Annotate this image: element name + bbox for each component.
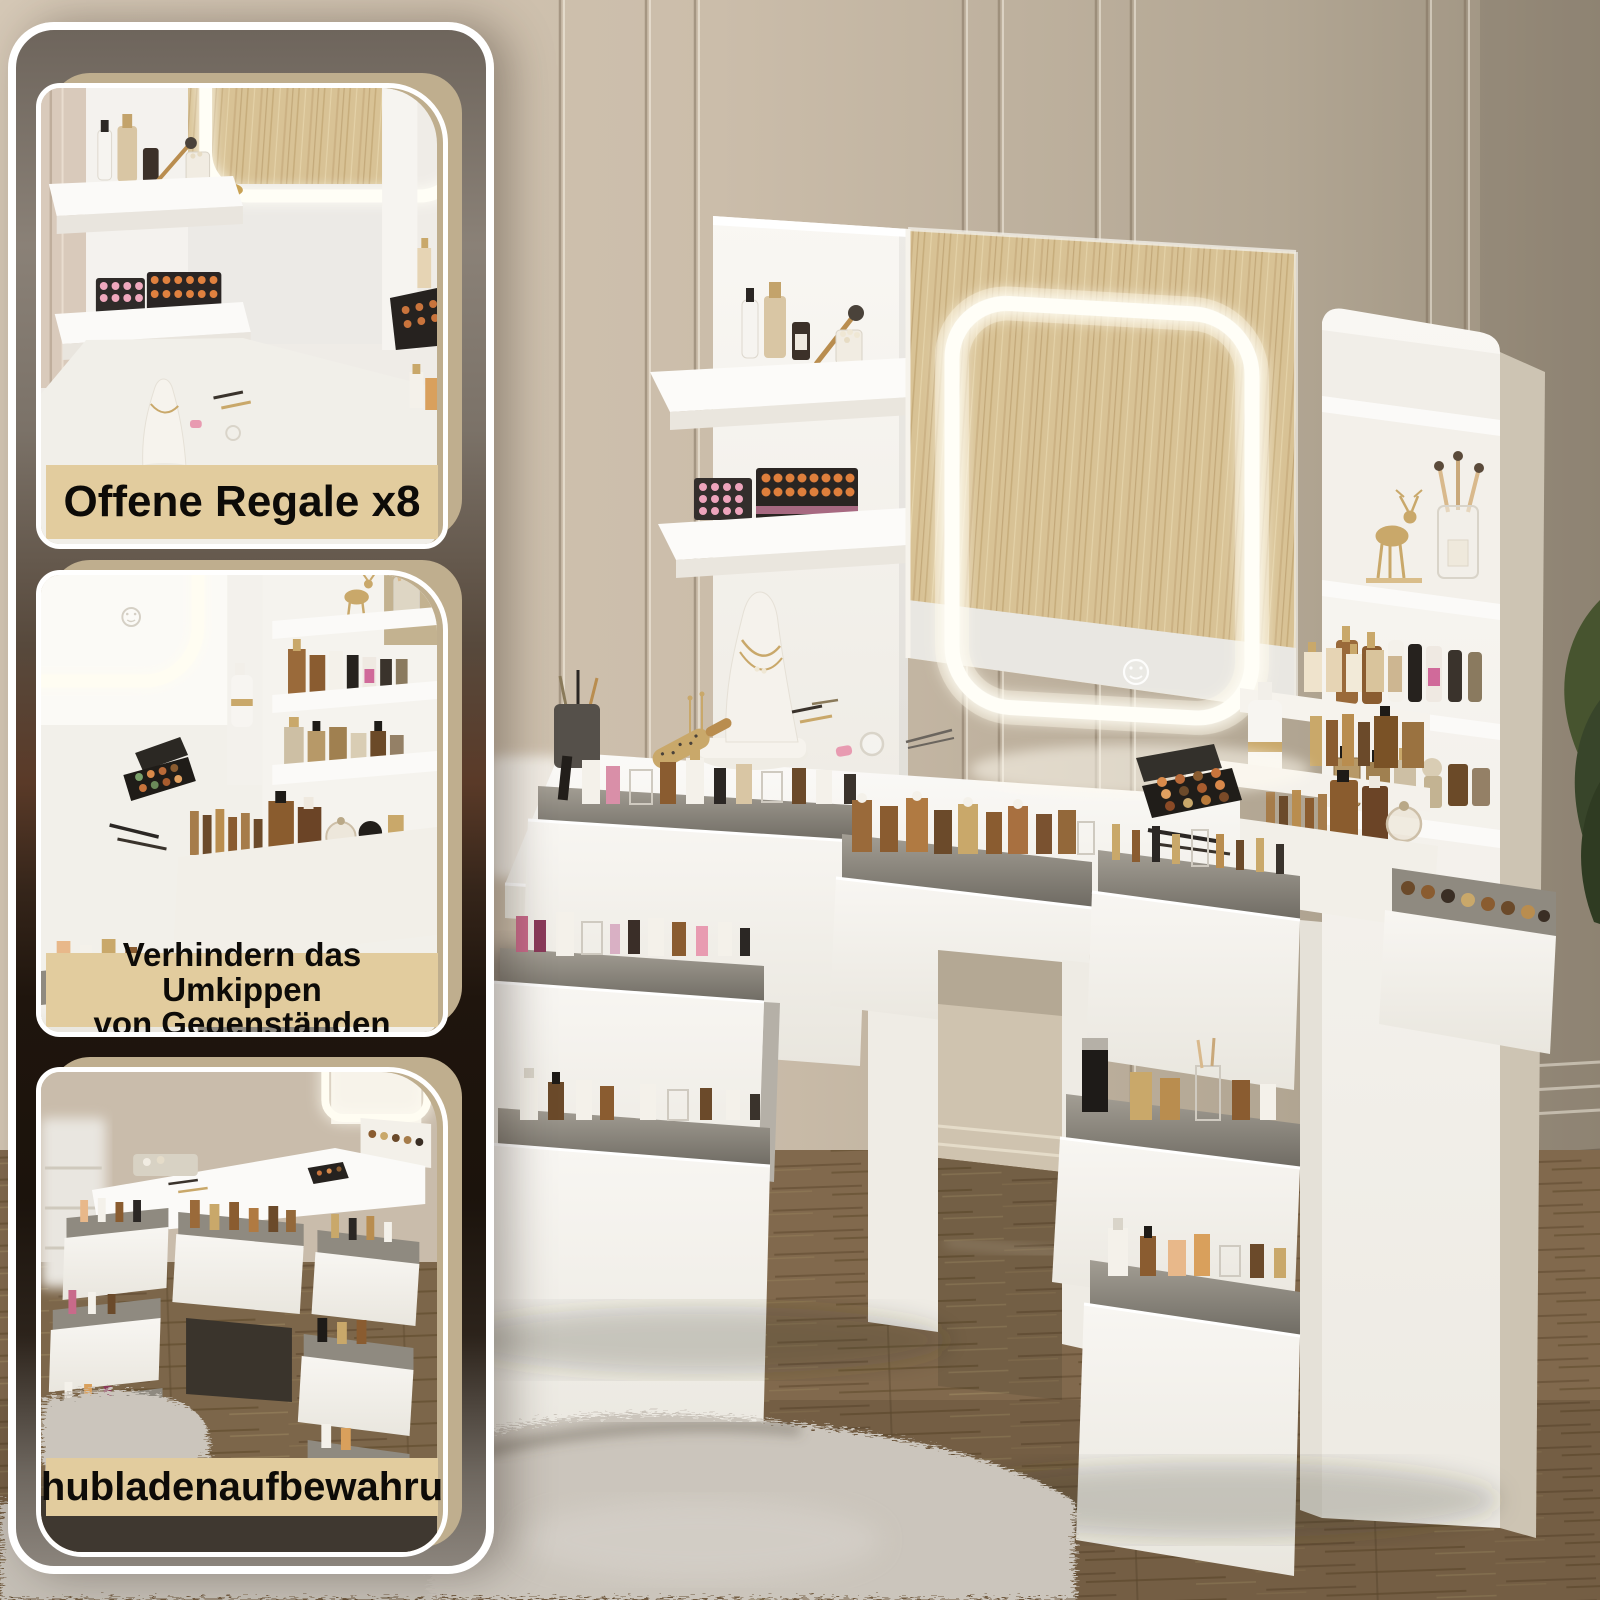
touch-control-icon: [1124, 660, 1148, 684]
callout-label: Schubladenaufbewahrung: [36, 1466, 448, 1508]
mini-kneehole: [186, 1318, 292, 1402]
callout-label: Verhindern das Umkippen: [46, 938, 438, 1008]
led-mirror: [908, 229, 1296, 721]
label-band: Offene Regale x8: [46, 465, 438, 539]
callout-card-drawer-storage: Schubladenaufbewahrung: [36, 1067, 448, 1557]
label-band: Schubladenaufbewahrung: [46, 1458, 438, 1516]
callout-label: Offene Regale x8: [63, 479, 420, 526]
callout-label-line2: von Gegenständen: [93, 1007, 390, 1037]
tower-open-tray: [1379, 868, 1556, 1054]
product-gallery-image: Offene Regale x8: [0, 0, 1600, 1600]
floor-shadow-left: [450, 1306, 950, 1374]
pedestal-right-side: [1300, 920, 1322, 1518]
callout-panel: Offene Regale x8: [8, 22, 494, 1574]
label-band: Verhindern das Umkippen von Gegenständen: [46, 953, 438, 1027]
callout-card-open-shelves: Offene Regale x8: [36, 83, 448, 549]
callout-card-anti-tip: Verhindern das Umkippen von Gegenständen: [36, 570, 448, 1037]
mini-drawer-center: [172, 1200, 303, 1402]
brush-cup: [1434, 451, 1484, 578]
